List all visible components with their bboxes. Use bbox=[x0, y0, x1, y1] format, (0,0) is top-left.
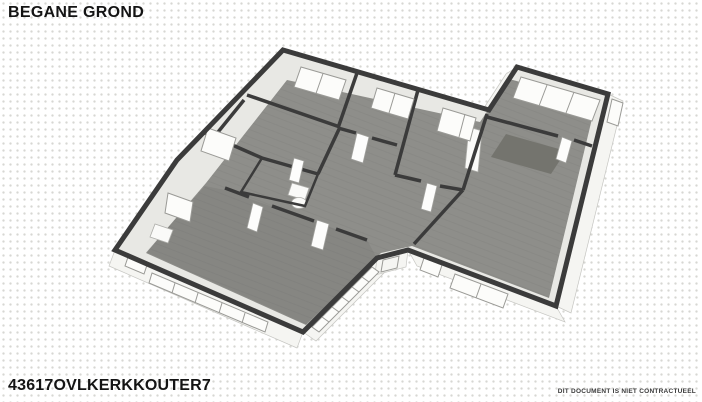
disclaimer-text: DIT DOCUMENT IS NIET CONTRACTUEEL bbox=[558, 388, 696, 395]
floor-plan-page: BEGANE GROND 43617OVLKERKKOUTER7 DIT DOC… bbox=[0, 0, 702, 402]
page-title: BEGANE GROND bbox=[8, 4, 144, 22]
floor-plan-3d bbox=[0, 0, 702, 402]
reference-code: 43617OVLKERKKOUTER7 bbox=[8, 377, 211, 395]
